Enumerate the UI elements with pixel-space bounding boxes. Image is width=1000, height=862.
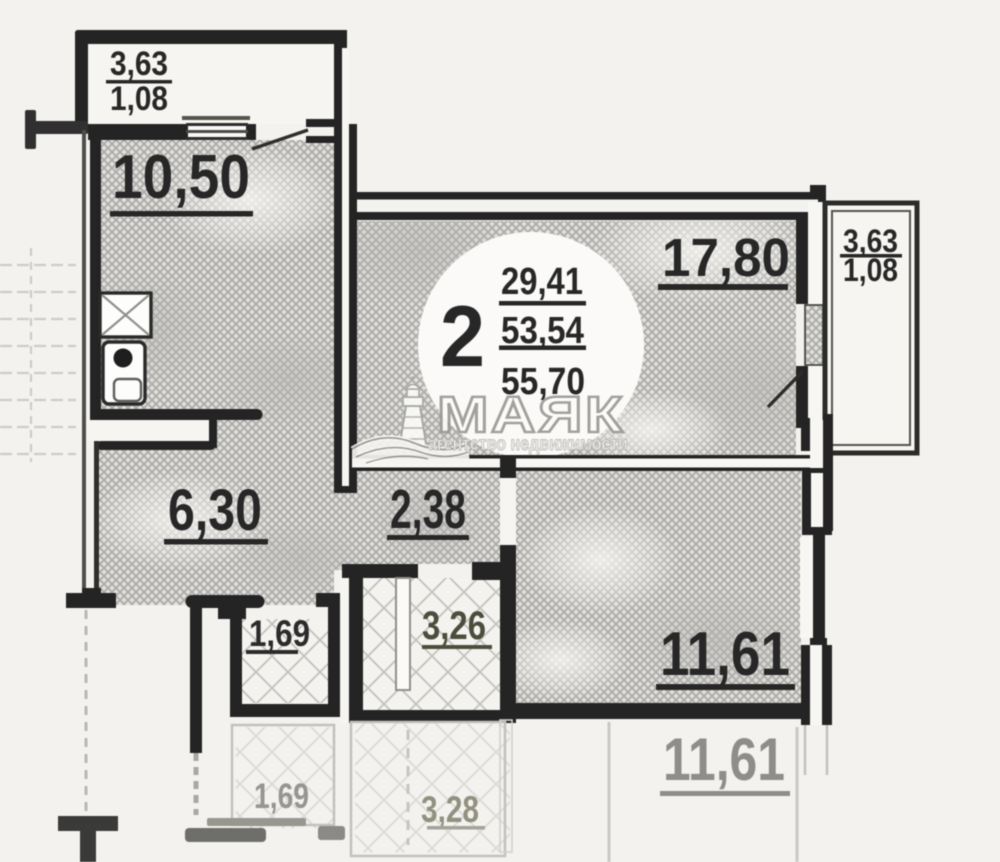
svg-text:агентство недвижимости: агентство недвижимости (428, 434, 628, 455)
svg-text:17,80: 17,80 (662, 228, 790, 288)
svg-text:2,38: 2,38 (390, 478, 466, 540)
svg-text:1,08: 1,08 (110, 80, 168, 118)
svg-text:11,61: 11,61 (660, 620, 790, 689)
svg-text:3,28: 3,28 (421, 789, 479, 830)
svg-text:1,08: 1,08 (843, 252, 898, 288)
svg-text:6,30: 6,30 (168, 478, 262, 543)
svg-text:10,50: 10,50 (112, 143, 250, 212)
svg-text:11,61: 11,61 (663, 726, 785, 793)
svg-text:2: 2 (440, 289, 485, 385)
svg-text:1,69: 1,69 (249, 613, 310, 654)
svg-text:29,41: 29,41 (501, 261, 583, 303)
svg-text:1,69: 1,69 (254, 777, 309, 816)
svg-text:3,63: 3,63 (110, 45, 168, 83)
svg-text:3,26: 3,26 (422, 604, 486, 648)
